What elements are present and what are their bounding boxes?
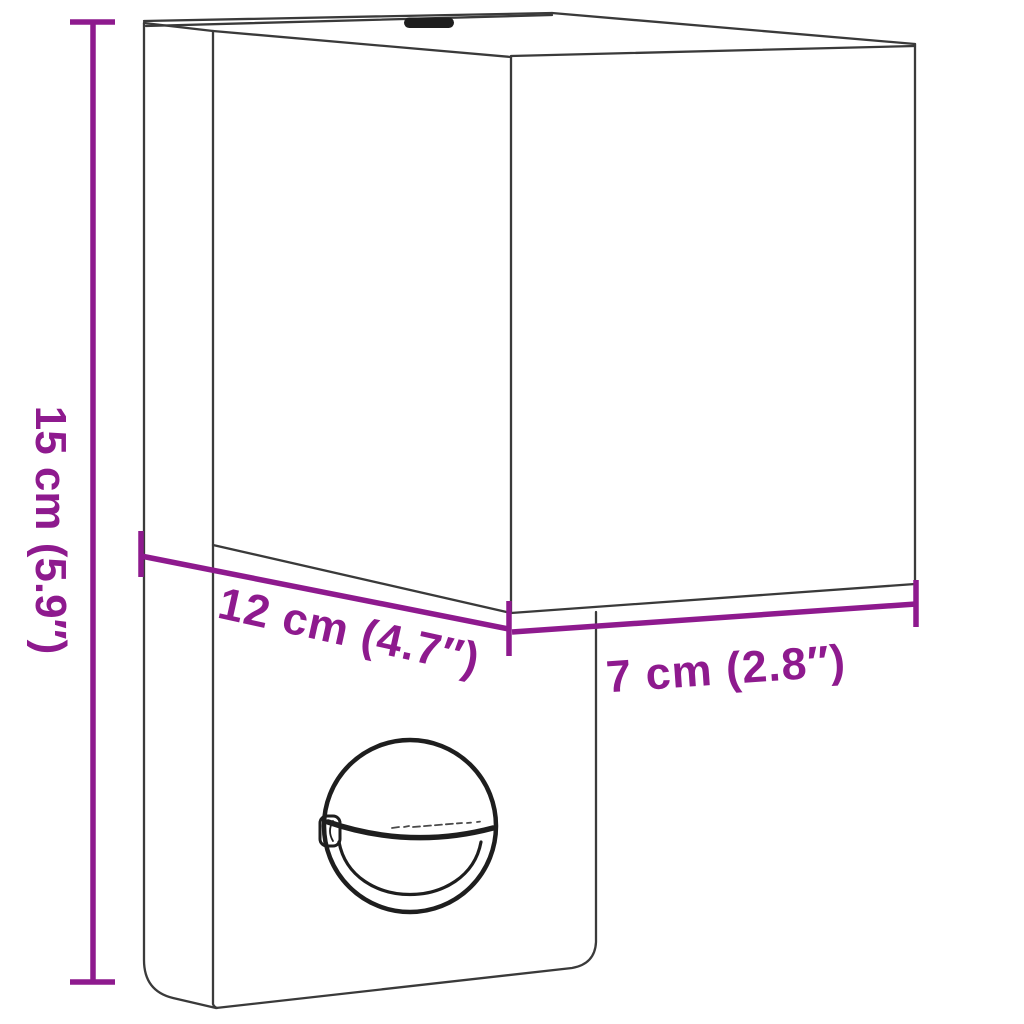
height-dimension-line — [70, 22, 115, 982]
sensor-hood-edge — [328, 822, 493, 838]
motion-sensor-icon — [320, 740, 496, 912]
top-screw-cap — [404, 18, 454, 29]
dimension-drawing-canvas: 15 cm (5.9″) 12 cm (4.7″) 7 cm (2.8″) — [0, 0, 1024, 1024]
box-top-left-edge — [213, 31, 511, 57]
plate-front-left-edge — [213, 31, 217, 1008]
width-dimension-label: 7 cm (2.8″) — [604, 635, 847, 703]
box-top-front-edge — [511, 46, 915, 56]
sensor-marking-scale — [413, 823, 462, 827]
sensor-inner-dome — [339, 842, 481, 895]
wall-plate-outline — [144, 13, 596, 1008]
height-dimension-label: 15 cm (5.9″) — [26, 406, 75, 655]
depth-dimension-label: 12 cm (4.7″) — [214, 577, 485, 684]
sensor-markings — [392, 822, 480, 828]
lamp-head-outline — [213, 13, 915, 613]
sensor-marking-dash — [404, 826, 409, 827]
plate-left-edge — [144, 23, 216, 1008]
sensor-marking-dash — [392, 827, 399, 828]
plate-bottom-right-edge — [216, 612, 596, 1008]
product-dimension-diagram: 15 cm (5.9″) 12 cm (4.7″) 7 cm (2.8″) — [0, 0, 1024, 1024]
box-top-back-edge — [552, 13, 915, 44]
